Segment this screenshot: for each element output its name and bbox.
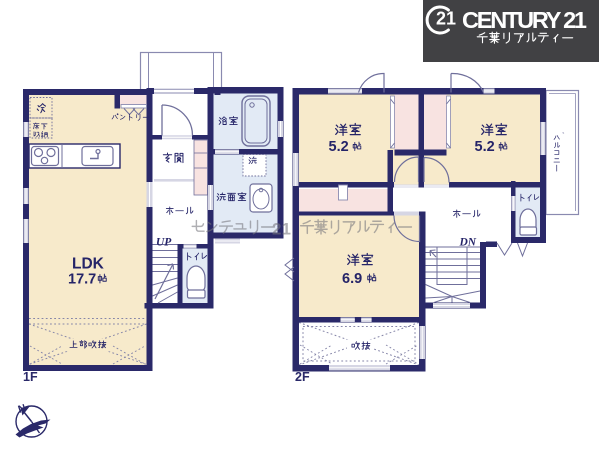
svg-text:2F: 2F	[295, 370, 310, 384]
svg-text:5.2: 5.2	[329, 139, 349, 155]
svg-text:6.9: 6.9	[342, 271, 362, 287]
svg-text:DN: DN	[459, 237, 477, 249]
svg-text:LDK: LDK	[72, 256, 105, 273]
svg-text:5.2: 5.2	[475, 139, 495, 155]
svg-text:21: 21	[436, 9, 456, 29]
svg-text:21: 21	[272, 220, 291, 239]
svg-text:1F: 1F	[23, 370, 38, 384]
svg-text:CENTURY 21: CENTURY 21	[462, 7, 587, 33]
svg-text:UP: UP	[156, 237, 172, 249]
svg-text:17.7: 17.7	[68, 272, 96, 288]
